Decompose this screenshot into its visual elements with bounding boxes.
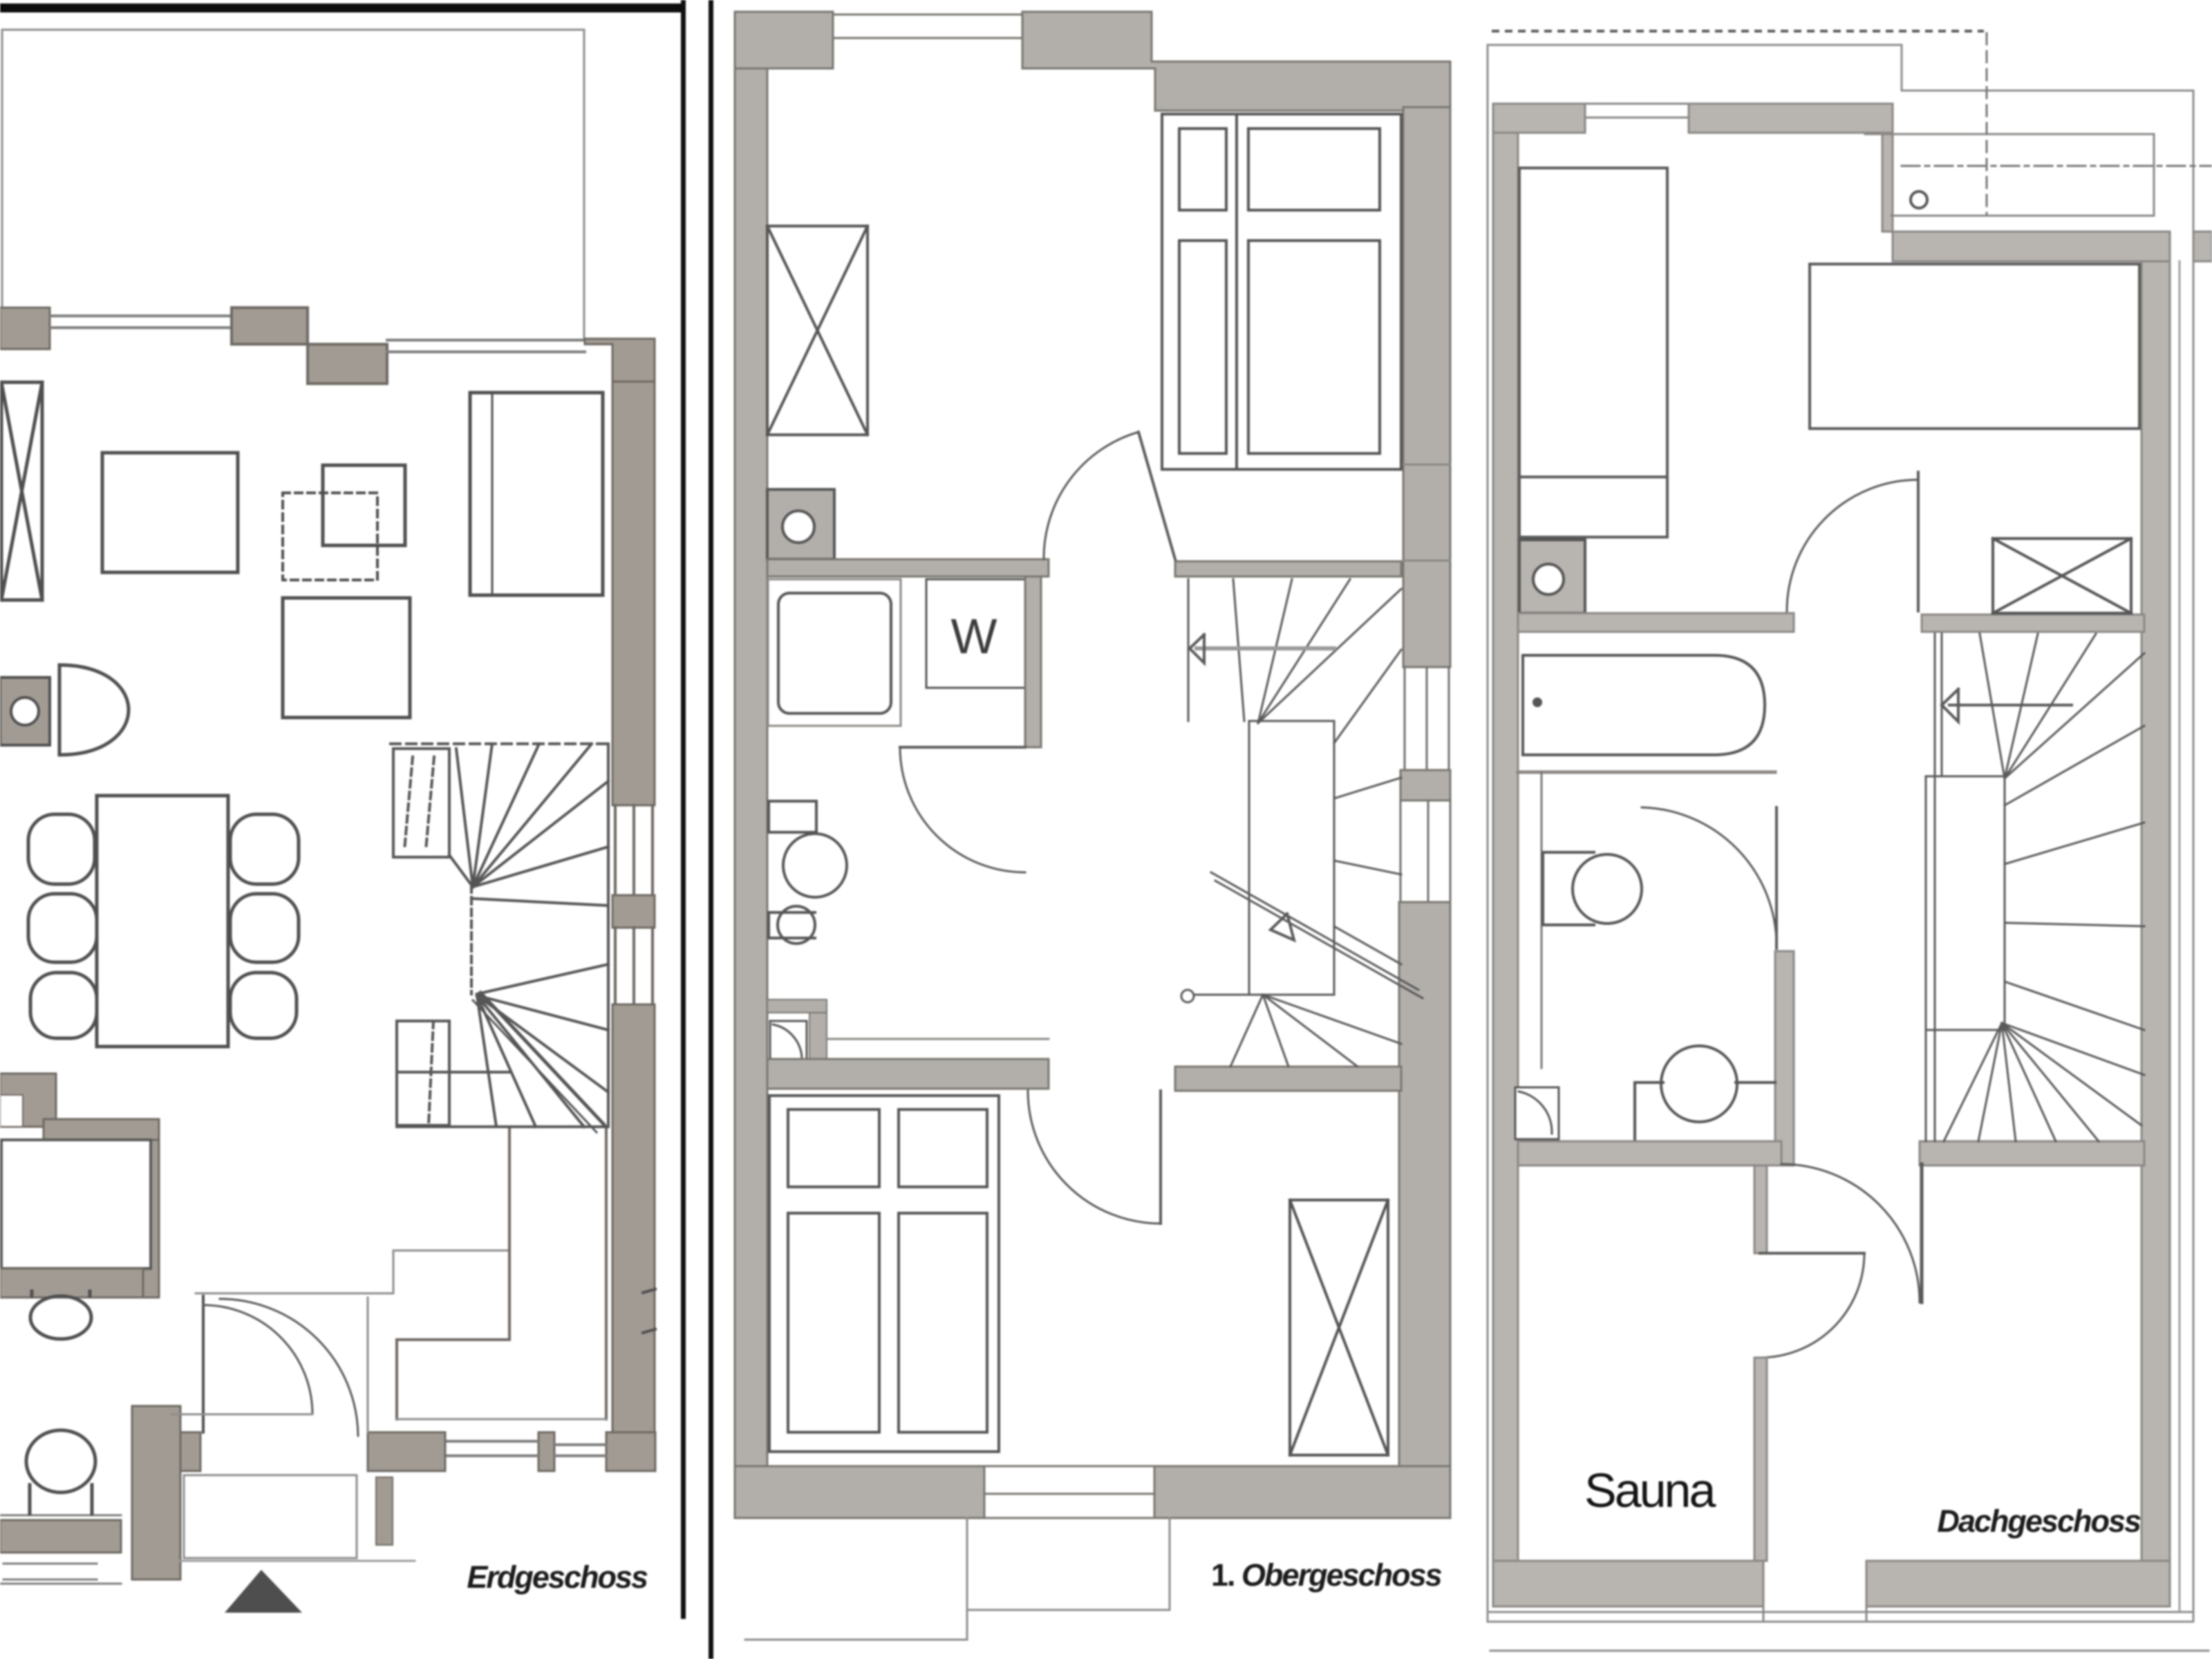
svg-text:Sauna: Sauna — [1584, 1463, 1716, 1517]
svg-text:Dachgeschoss: Dachgeschoss — [1937, 1503, 2141, 1539]
svg-text:W: W — [950, 610, 997, 664]
svg-text:Erdgeschoss: Erdgeschoss — [467, 1559, 648, 1595]
svg-text:1. Obergeschoss: 1. Obergeschoss — [1211, 1557, 1442, 1593]
